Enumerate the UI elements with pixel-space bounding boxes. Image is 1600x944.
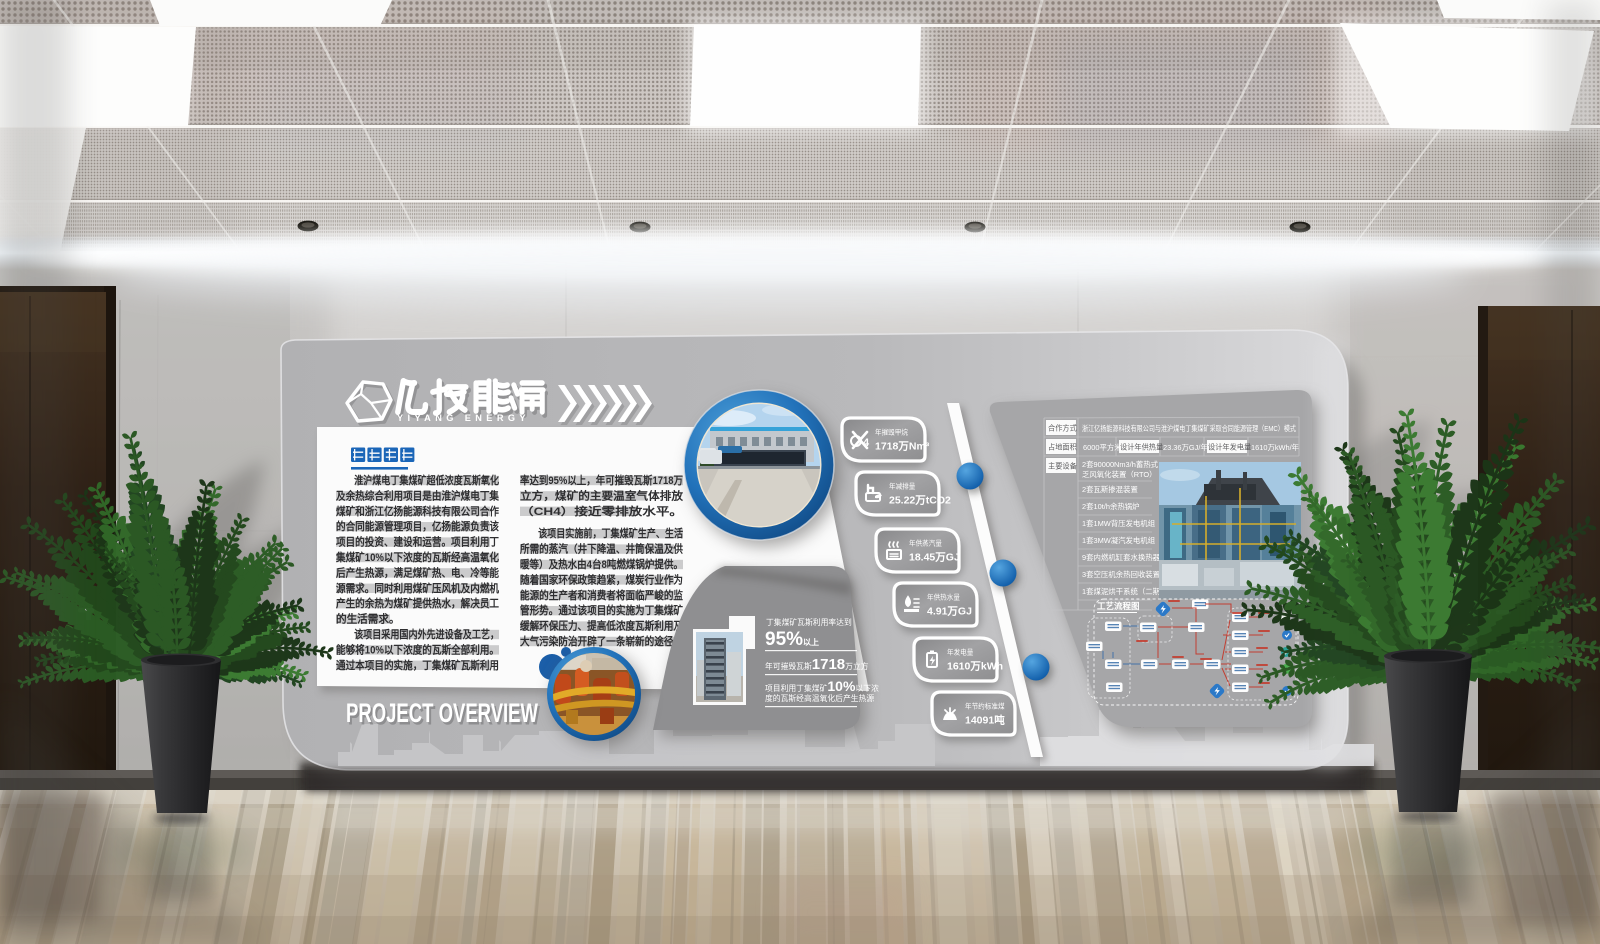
svg-text:（CH4）接近零排放水平。: （CH4）接近零排放水平。 xyxy=(520,505,683,518)
svg-text:的合同能源管理项目，亿扬能源负责该: 的合同能源管理项目，亿扬能源负责该 xyxy=(336,520,499,533)
svg-text:浙江亿扬能源科技有限公司与淮沪煤电丁集煤矿采取合同能源管理（: 浙江亿扬能源科技有限公司与淮沪煤电丁集煤矿采取合同能源管理（EMC）模式 xyxy=(1082,424,1296,433)
svg-text:PROJECT OVERVIEW: PROJECT OVERVIEW xyxy=(346,698,538,728)
svg-text:该项目实施前，丁集煤矿生产、生活: 该项目实施前，丁集煤矿生产、生活 xyxy=(520,527,683,540)
svg-text:25.22万tCO2: 25.22万tCO2 xyxy=(889,495,951,507)
svg-text:年摧毁甲烷: 年摧毁甲烷 xyxy=(875,428,908,437)
svg-text:1套3MW凝汽发电机组: 1套3MW凝汽发电机组 xyxy=(1082,536,1156,545)
svg-text:乏风氧化装置（RTO）: 乏风氧化装置（RTO） xyxy=(1082,470,1156,479)
svg-text:所需的蒸汽（井下降温、井筒保温及供: 所需的蒸汽（井下降温、井筒保温及供 xyxy=(520,543,683,556)
svg-text:3套空压机余热回收装置: 3套空压机余热回收装置 xyxy=(1082,570,1160,579)
svg-text:后产生热源，满足煤矿热、电、冷等能: 后产生热源，满足煤矿热、电、冷等能 xyxy=(336,566,499,579)
svg-text:产生的余热为煤矿提供热水，解决员工: 产生的余热为煤矿提供热水，解决员工 xyxy=(336,597,499,610)
svg-text:2套10t/h余热锅炉: 2套10t/h余热锅炉 xyxy=(1082,502,1140,511)
svg-text:的生活需求。: 的生活需求。 xyxy=(336,613,400,626)
svg-text:丁集煤矿瓦斯利用率达到: 丁集煤矿瓦斯利用率达到 xyxy=(766,617,852,627)
svg-text:1610万kWh: 1610万kWh xyxy=(947,661,1003,673)
svg-text:设计年供热量: 设计年供热量 xyxy=(1120,443,1163,452)
svg-text:大气污染防治开辟了一条崭新的途径。: 大气污染防治开辟了一条崭新的途径。 xyxy=(520,635,683,648)
svg-text:年节约标准煤: 年节约标准煤 xyxy=(965,702,1005,711)
svg-text:管形势。通过该项目的实施为丁集煤矿: 管形势。通过该项目的实施为丁集煤矿 xyxy=(520,604,683,617)
svg-text:年发电量: 年发电量 xyxy=(947,648,974,657)
svg-text:淮沪煤电丁集煤矿超低浓度瓦斯氧化: 淮沪煤电丁集煤矿超低浓度瓦斯氧化 xyxy=(336,474,499,487)
svg-text:合作方式: 合作方式 xyxy=(1048,424,1077,433)
svg-text:18.45万GJ: 18.45万GJ xyxy=(909,552,960,564)
svg-text:1718万Nm³: 1718万Nm³ xyxy=(875,441,930,453)
svg-text:年减排量: 年减排量 xyxy=(889,482,916,491)
svg-text:该项目采用国内外先进设备及工艺，: 该项目采用国内外先进设备及工艺， xyxy=(336,628,499,641)
svg-text:14091吨: 14091吨 xyxy=(965,714,1005,727)
svg-text:YIYANG ENERGY: YIYANG ENERGY xyxy=(397,413,530,423)
svg-text:6000平方米: 6000平方米 xyxy=(1083,443,1122,452)
svg-text:煤矿和浙江亿扬能源科技有限公司合作: 煤矿和浙江亿扬能源科技有限公司合作 xyxy=(336,505,499,518)
svg-text:项目的投资、建设和运营。项目利用丁: 项目的投资、建设和运营。项目利用丁 xyxy=(336,536,499,549)
svg-text:工艺流程图: 工艺流程图 xyxy=(1097,601,1140,611)
svg-text:设计年发电量: 设计年发电量 xyxy=(1208,443,1251,452)
svg-text:立方，煤矿的主要温室气体排放: 立方，煤矿的主要温室气体排放 xyxy=(520,489,683,502)
svg-text:2套瓦斯掺混装置: 2套瓦斯掺混装置 xyxy=(1082,485,1138,494)
svg-text:度的瓦斯经高温氧化后产生热源: 度的瓦斯经高温氧化后产生热源 xyxy=(765,693,874,703)
svg-text:主要设备: 主要设备 xyxy=(1048,462,1077,471)
svg-text:通过本项目的实施，丁集煤矿瓦斯利用: 通过本项目的实施，丁集煤矿瓦斯利用 xyxy=(336,659,499,672)
svg-text:4.91万GJ: 4.91万GJ xyxy=(927,606,972,618)
svg-text:1套煤泥烘干系统（二期）: 1套煤泥烘干系统（二期） xyxy=(1082,587,1167,596)
svg-text:源需求。同时利用煤矿压风机及内燃机: 源需求。同时利用煤矿压风机及内燃机 xyxy=(336,582,499,595)
svg-text:率达到95%以上，年可摧毁瓦斯1718万: 率达到95%以上，年可摧毁瓦斯1718万 xyxy=(520,474,683,487)
svg-text:年供蒸汽量: 年供蒸汽量 xyxy=(909,539,942,548)
svg-text:暖等）及热水由4台8吨燃煤锅炉提供。: 暖等）及热水由4台8吨燃煤锅炉提供。 xyxy=(520,558,683,571)
svg-text:4: 4 xyxy=(863,437,870,449)
svg-text:及余热综合利用项目是由淮沪煤电丁集: 及余热综合利用项目是由淮沪煤电丁集 xyxy=(336,489,499,502)
svg-text:能源的生产者和消费者将面临严峻的监: 能源的生产者和消费者将面临严峻的监 xyxy=(520,589,683,602)
svg-text:9套内燃机缸套水换热器: 9套内燃机缸套水换热器 xyxy=(1082,553,1161,562)
svg-text:23.36万GJ/年: 23.36万GJ/年 xyxy=(1163,443,1208,452)
svg-text:能够将10%以下浓度的瓦斯全部利用。: 能够将10%以下浓度的瓦斯全部利用。 xyxy=(336,643,499,656)
svg-text:年供热水量: 年供热水量 xyxy=(927,593,960,602)
svg-text:1610万kWh/年: 1610万kWh/年 xyxy=(1251,443,1300,452)
svg-text:2套90000Nm3/h蓄热式: 2套90000Nm3/h蓄热式 xyxy=(1082,460,1159,469)
svg-text:集煤矿10%以下浓度的瓦斯经高温氧化: 集煤矿10%以下浓度的瓦斯经高温氧化 xyxy=(335,551,499,564)
svg-text:占地面积: 占地面积 xyxy=(1048,443,1077,452)
svg-text:1套1MW背压发电机组: 1套1MW背压发电机组 xyxy=(1082,519,1156,528)
svg-text:缓解环保压力、提高低浓度瓦斯利用及: 缓解环保压力、提高低浓度瓦斯利用及 xyxy=(519,620,683,633)
svg-text:随着国家环保政策趋紧，煤炭行业作为: 随着国家环保政策趋紧，煤炭行业作为 xyxy=(520,573,683,586)
